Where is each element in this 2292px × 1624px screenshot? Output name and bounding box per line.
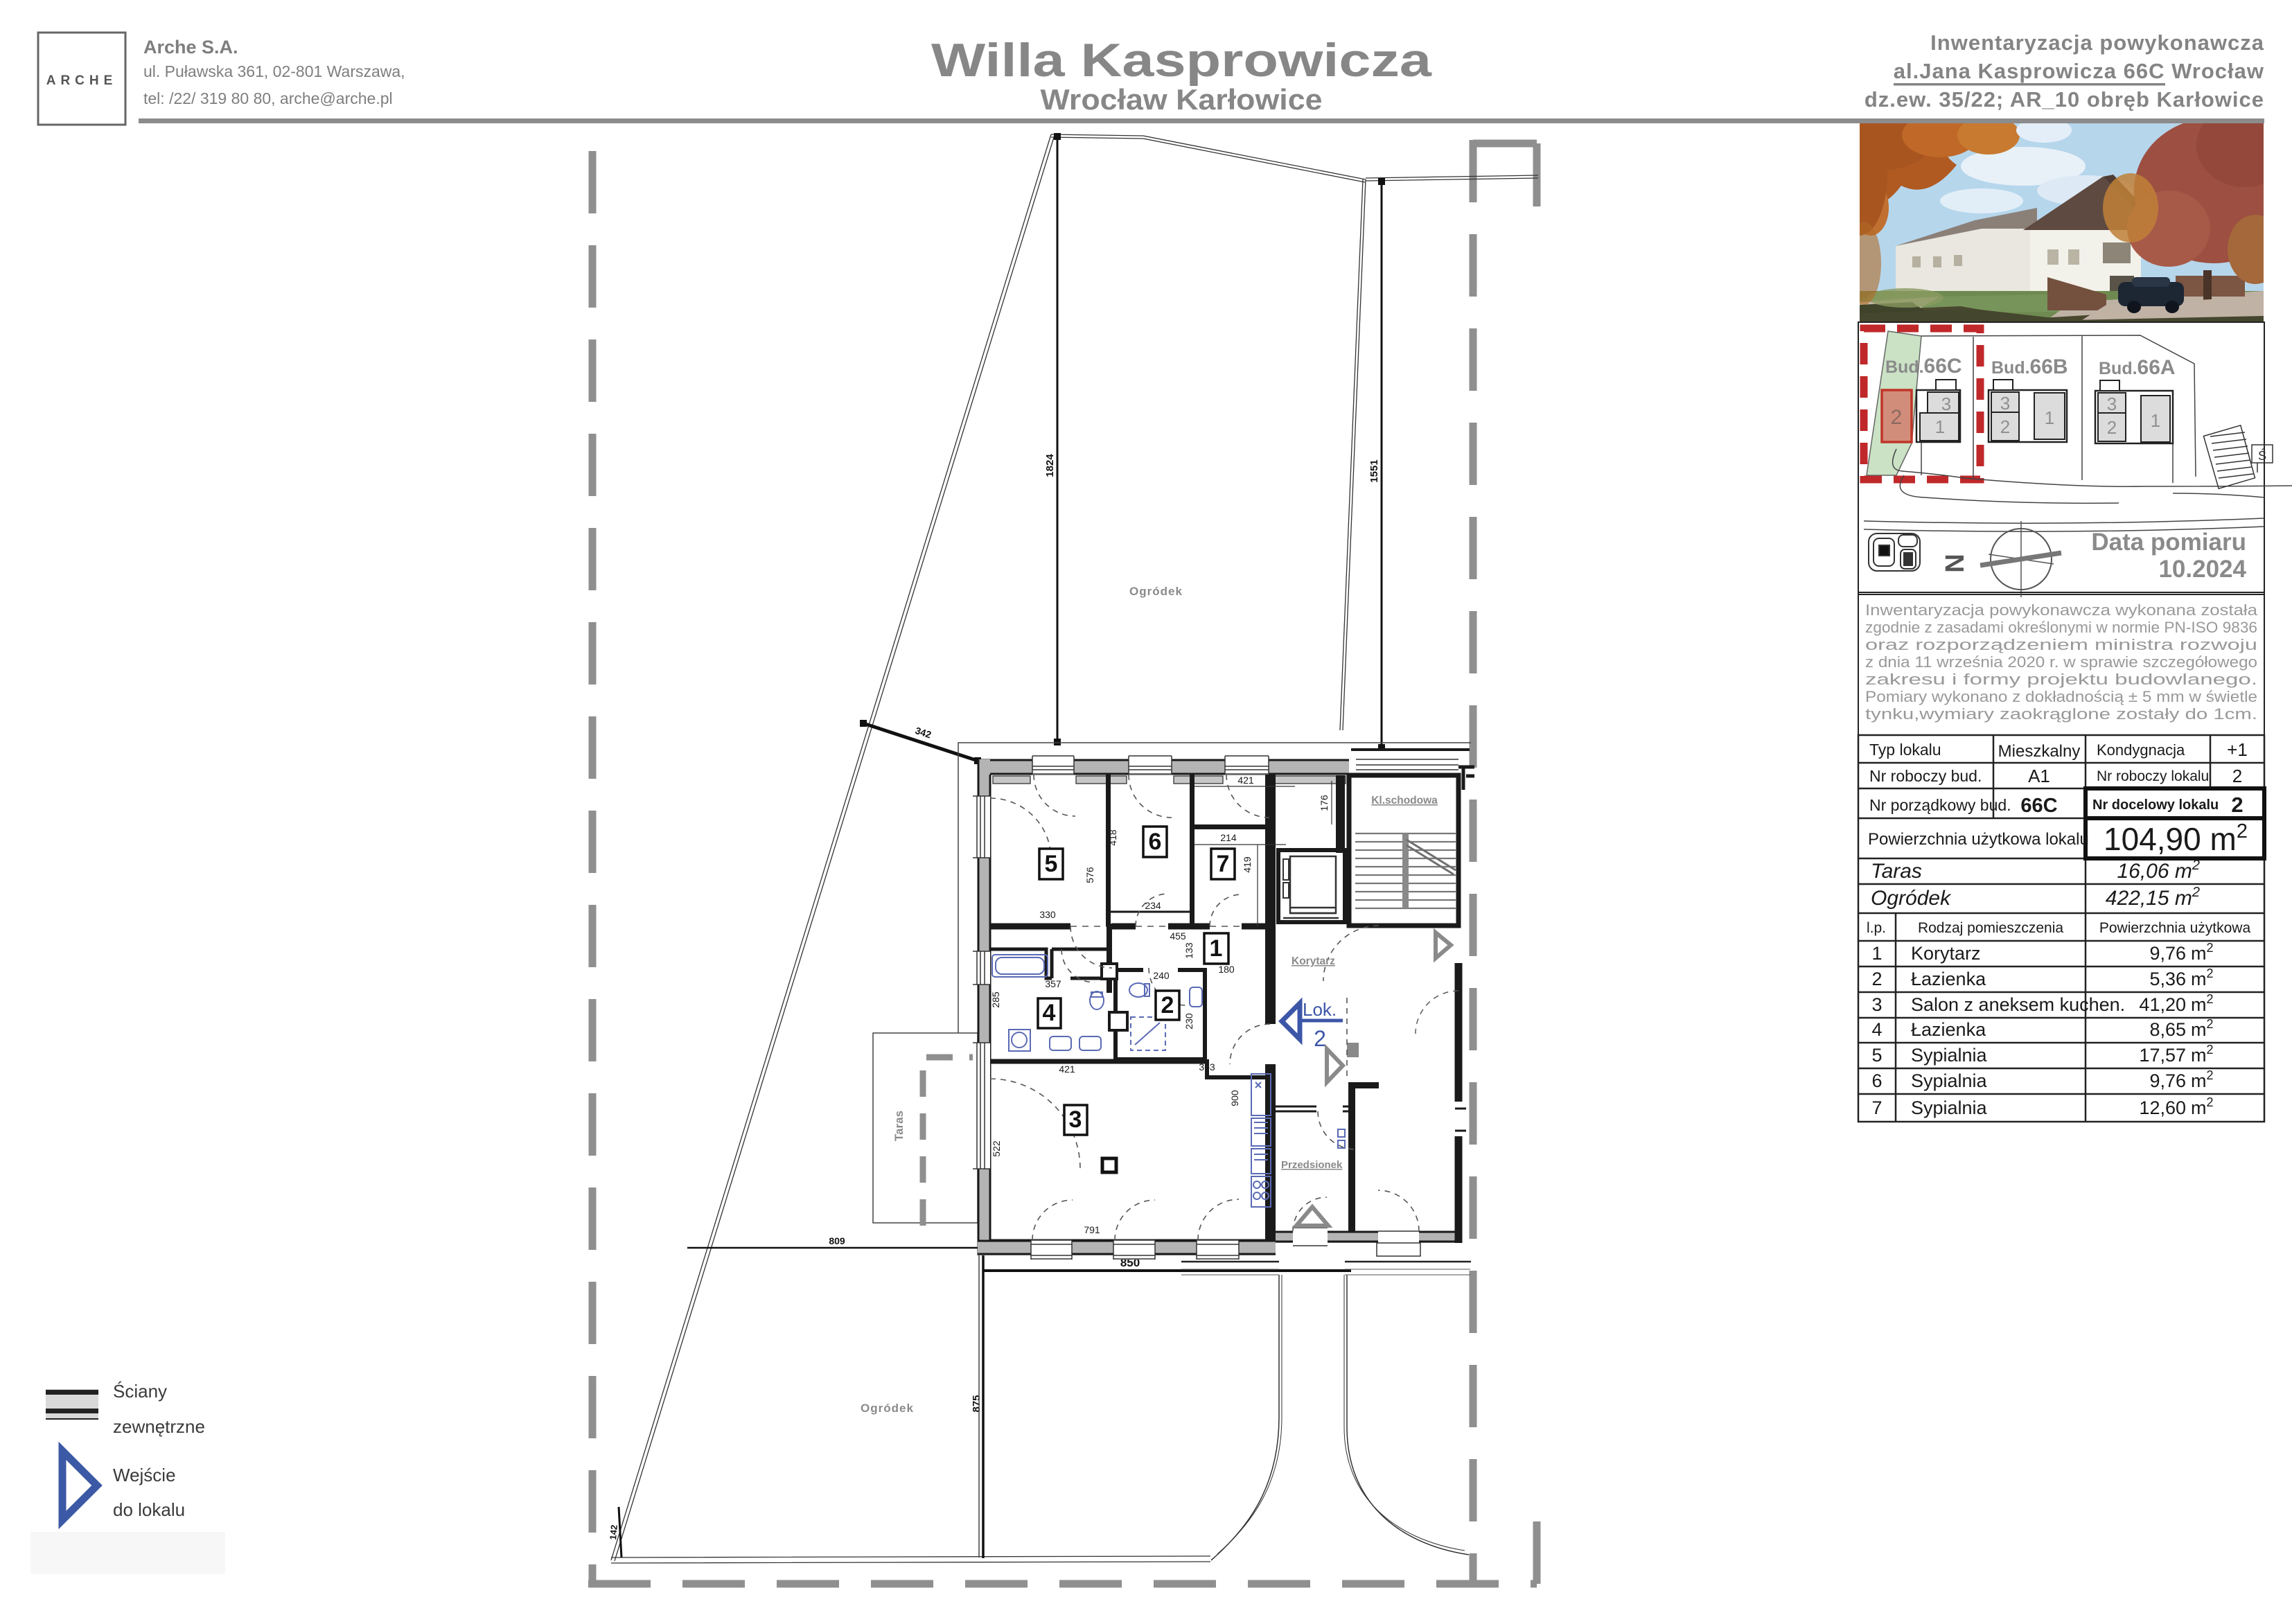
svg-text:Sypialnia: Sypialnia	[1911, 1070, 1988, 1091]
svg-text:4: 4	[1043, 1000, 1056, 1026]
svg-text:Ogródek: Ogródek	[1871, 887, 1952, 910]
svg-text:422,15 m2: 422,15 m2	[2106, 885, 2200, 910]
svg-text:2: 2	[1314, 1026, 1326, 1051]
svg-text:Nr roboczy bud.: Nr roboczy bud.	[1869, 767, 1982, 785]
svg-text:l.p.: l.p.	[1867, 920, 1886, 936]
svg-text:230: 230	[1183, 1013, 1195, 1030]
svg-text:2: 2	[2000, 416, 2010, 437]
svg-text:N: N	[1941, 554, 1970, 572]
svg-text:419: 419	[1242, 856, 1253, 873]
svg-text:Nr porządkowy bud.: Nr porządkowy bud.	[1869, 796, 2011, 814]
svg-text:176: 176	[1319, 795, 1330, 811]
svg-text:16,06 m2: 16,06 m2	[2117, 858, 2200, 883]
svg-text:Willa Kasprowicza: Willa Kasprowicza	[931, 34, 1432, 87]
svg-text:Ogródek: Ogródek	[1129, 585, 1183, 598]
svg-text:9,76: 9,76	[2149, 943, 2186, 964]
svg-text:Pomiary wykonano z dokładności: Pomiary wykonano z dokładnością ± 5 mm w…	[1865, 688, 2257, 705]
svg-text:Nr docelowy lokalu: Nr docelowy lokalu	[2092, 797, 2219, 813]
svg-text:8,65: 8,65	[2149, 1019, 2186, 1040]
svg-text:5: 5	[1871, 1045, 1882, 1066]
svg-text:al.Jana Kasprowicza 66C Wrocła: al.Jana Kasprowicza 66C Wrocław	[1894, 59, 2264, 83]
svg-text:3: 3	[1069, 1106, 1082, 1133]
svg-text:Kl.schodowa: Kl.schodowa	[1371, 795, 1438, 806]
svg-text:Ogródek: Ogródek	[861, 1402, 914, 1415]
svg-text:dz.ew. 35/22; AR_10 obręb Karł: dz.ew. 35/22; AR_10 obręb Karłowice	[1865, 87, 2264, 112]
svg-text:Sypialnia: Sypialnia	[1911, 1045, 1988, 1066]
svg-text:1: 1	[2151, 410, 2160, 431]
svg-text:3: 3	[1871, 994, 1882, 1015]
svg-text:104,90 m2: 104,90 m2	[2104, 820, 2248, 857]
svg-text:133: 133	[1183, 942, 1195, 959]
svg-text:z dnia 11 września 2020 r. w s: z dnia 11 września 2020 r. w sprawie szc…	[1865, 653, 2257, 671]
svg-text:10.2024: 10.2024	[2158, 556, 2246, 583]
svg-text:1824: 1824	[1044, 454, 1056, 477]
svg-text:576: 576	[1084, 867, 1095, 883]
svg-text:7: 7	[1217, 851, 1230, 877]
svg-text:Kondygnacja: Kondygnacja	[2097, 741, 2185, 759]
svg-text:zakresu i formy projektu budow: zakresu i formy projektu budowlanego.	[1865, 671, 2257, 688]
svg-text:285: 285	[990, 991, 1001, 1008]
svg-text:Łazienka: Łazienka	[1911, 969, 1986, 989]
svg-text:1551: 1551	[1368, 459, 1380, 482]
svg-text:3: 3	[2000, 393, 2010, 414]
svg-text:330: 330	[1039, 909, 1056, 920]
svg-text:Data pomiaru: Data pomiaru	[2091, 529, 2246, 556]
svg-text:Ściany: Ściany	[113, 1381, 167, 1402]
svg-text:5: 5	[1045, 851, 1058, 877]
svg-text:2: 2	[1161, 992, 1174, 1018]
svg-text:Typ lokalu: Typ lokalu	[1869, 741, 1941, 759]
svg-text:Powierzchnia użytkowa lokalu: Powierzchnia użytkowa lokalu	[1868, 830, 2089, 849]
svg-text:875: 875	[971, 1395, 982, 1412]
svg-text:Nr roboczy lokalu: Nr roboczy lokalu	[2097, 768, 2209, 784]
svg-text:ul. Puławska 361, 02-801 Warsz: ul. Puławska 361, 02-801 Warszawa,	[143, 62, 405, 80]
svg-text:1: 1	[1935, 416, 1945, 437]
svg-text:oraz rozporządzeniem ministra: oraz rozporządzeniem ministra rozwoju	[1865, 636, 2257, 653]
svg-text:Korytarz: Korytarz	[1292, 955, 1335, 967]
svg-text:12,60: 12,60	[2139, 1097, 2186, 1118]
svg-text:Taras: Taras	[1871, 860, 1922, 883]
svg-text:A1: A1	[2028, 766, 2050, 786]
svg-text:240: 240	[1153, 970, 1170, 981]
svg-text:214: 214	[1220, 832, 1237, 843]
svg-text:Sypialnia: Sypialnia	[1911, 1097, 1988, 1118]
svg-text:4: 4	[1871, 1019, 1882, 1040]
svg-text:17,57: 17,57	[2139, 1045, 2186, 1066]
svg-text:Bud.66A: Bud.66A	[2099, 356, 2176, 379]
svg-text:Wrocław Karłowice: Wrocław Karłowice	[1041, 83, 1323, 116]
svg-text:1: 1	[1210, 935, 1223, 962]
svg-text:Rodzaj pomieszczenia: Rodzaj pomieszczenia	[1918, 920, 2063, 936]
svg-text:Ś: Ś	[2258, 448, 2266, 463]
svg-text:1: 1	[2045, 407, 2054, 428]
svg-text:421: 421	[1059, 1063, 1075, 1075]
svg-text:Korytarz: Korytarz	[1911, 943, 1981, 964]
svg-text:zgodnie z zasadami określonymi: zgodnie z zasadami określonymi w normie …	[1865, 619, 2257, 636]
svg-text:Inwentaryzacja powykonawcza: Inwentaryzacja powykonawcza	[1930, 30, 2264, 55]
svg-text:363: 363	[1199, 1061, 1215, 1073]
svg-text:455: 455	[1170, 930, 1186, 942]
svg-text:3: 3	[1941, 394, 1951, 414]
svg-text:2: 2	[2232, 766, 2242, 786]
svg-text:2: 2	[1871, 969, 1882, 989]
svg-text:66C: 66C	[2020, 795, 2057, 817]
svg-text:418: 418	[1107, 829, 1118, 846]
svg-text:6: 6	[1149, 829, 1162, 855]
svg-text:2: 2	[1891, 406, 1903, 429]
svg-text:2: 2	[2107, 417, 2117, 438]
svg-text:tynku,wymiary zaokrąglone zost: tynku,wymiary zaokrąglone zostały do 1cm…	[1865, 705, 2257, 723]
svg-text:900: 900	[1229, 1090, 1240, 1106]
svg-text:Mieszkalny: Mieszkalny	[1998, 742, 2081, 761]
svg-text:41,20: 41,20	[2139, 994, 2186, 1015]
svg-text:Wejście: Wejście	[113, 1465, 176, 1485]
svg-text:Powierzchnia użytkowa: Powierzchnia użytkowa	[2099, 920, 2251, 936]
svg-text:Przedsionek: Przedsionek	[1281, 1159, 1343, 1171]
svg-text:Lok.: Lok.	[1303, 999, 1337, 1020]
svg-text:522: 522	[991, 1140, 1002, 1157]
svg-text:142: 142	[608, 1524, 619, 1540]
svg-text:Bud.66C: Bud.66C	[1885, 355, 1962, 378]
svg-text:421: 421	[1237, 775, 1254, 786]
svg-text:do lokalu: do lokalu	[113, 1499, 185, 1520]
svg-text:357: 357	[1045, 978, 1061, 989]
svg-text:Bud.66B: Bud.66B	[1991, 355, 2068, 378]
svg-text:zewnętrzne: zewnętrzne	[113, 1416, 205, 1437]
svg-text:tel: /22/ 319 80 80, arche@arc: tel: /22/ 319 80 80, arche@arche.pl	[143, 89, 393, 107]
svg-text:180: 180	[1218, 964, 1235, 975]
svg-text:Taras: Taras	[892, 1111, 906, 1141]
svg-text:9,76: 9,76	[2149, 1070, 2186, 1091]
svg-text:Arche S.A.: Arche S.A.	[143, 37, 238, 58]
svg-text:Inwentaryzacja powykonawcza wy: Inwentaryzacja powykonawcza wykonana zos…	[1865, 601, 2258, 619]
svg-text:ARCHE: ARCHE	[46, 73, 118, 88]
svg-text:2: 2	[2231, 793, 2243, 817]
svg-text:Salon z aneksem kuchen.: Salon z aneksem kuchen.	[1911, 994, 2125, 1015]
svg-text:7: 7	[1871, 1097, 1882, 1118]
svg-text:791: 791	[1084, 1224, 1100, 1235]
svg-text:809: 809	[829, 1235, 845, 1246]
svg-text:3: 3	[2107, 394, 2117, 414]
svg-text:+1: +1	[2227, 739, 2248, 760]
svg-text:5,36: 5,36	[2149, 969, 2186, 989]
svg-text:Łazienka: Łazienka	[1911, 1019, 1986, 1040]
svg-text:234: 234	[1145, 900, 1161, 911]
svg-text:6: 6	[1871, 1070, 1882, 1091]
svg-text:1: 1	[1871, 943, 1882, 964]
